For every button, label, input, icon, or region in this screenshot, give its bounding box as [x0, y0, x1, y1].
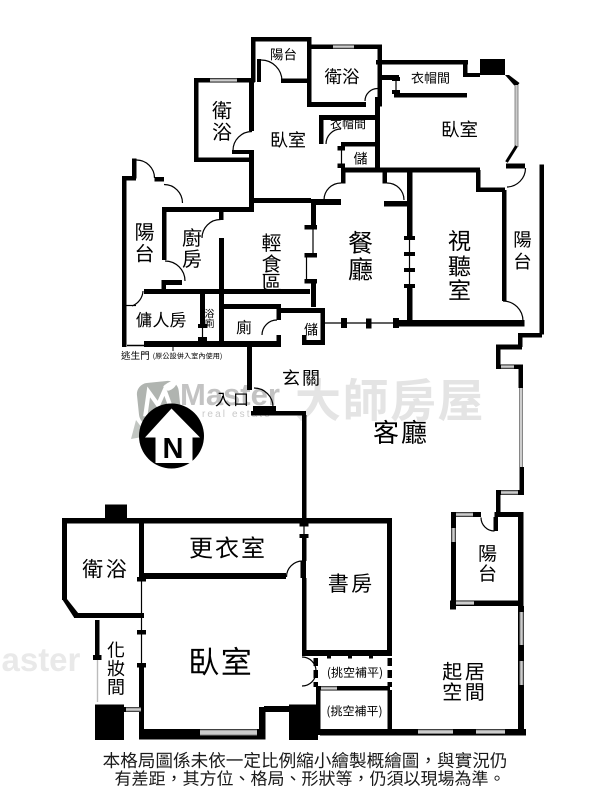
svg-text:N: N: [163, 433, 184, 465]
svg-text:Master: Master: [0, 641, 81, 678]
